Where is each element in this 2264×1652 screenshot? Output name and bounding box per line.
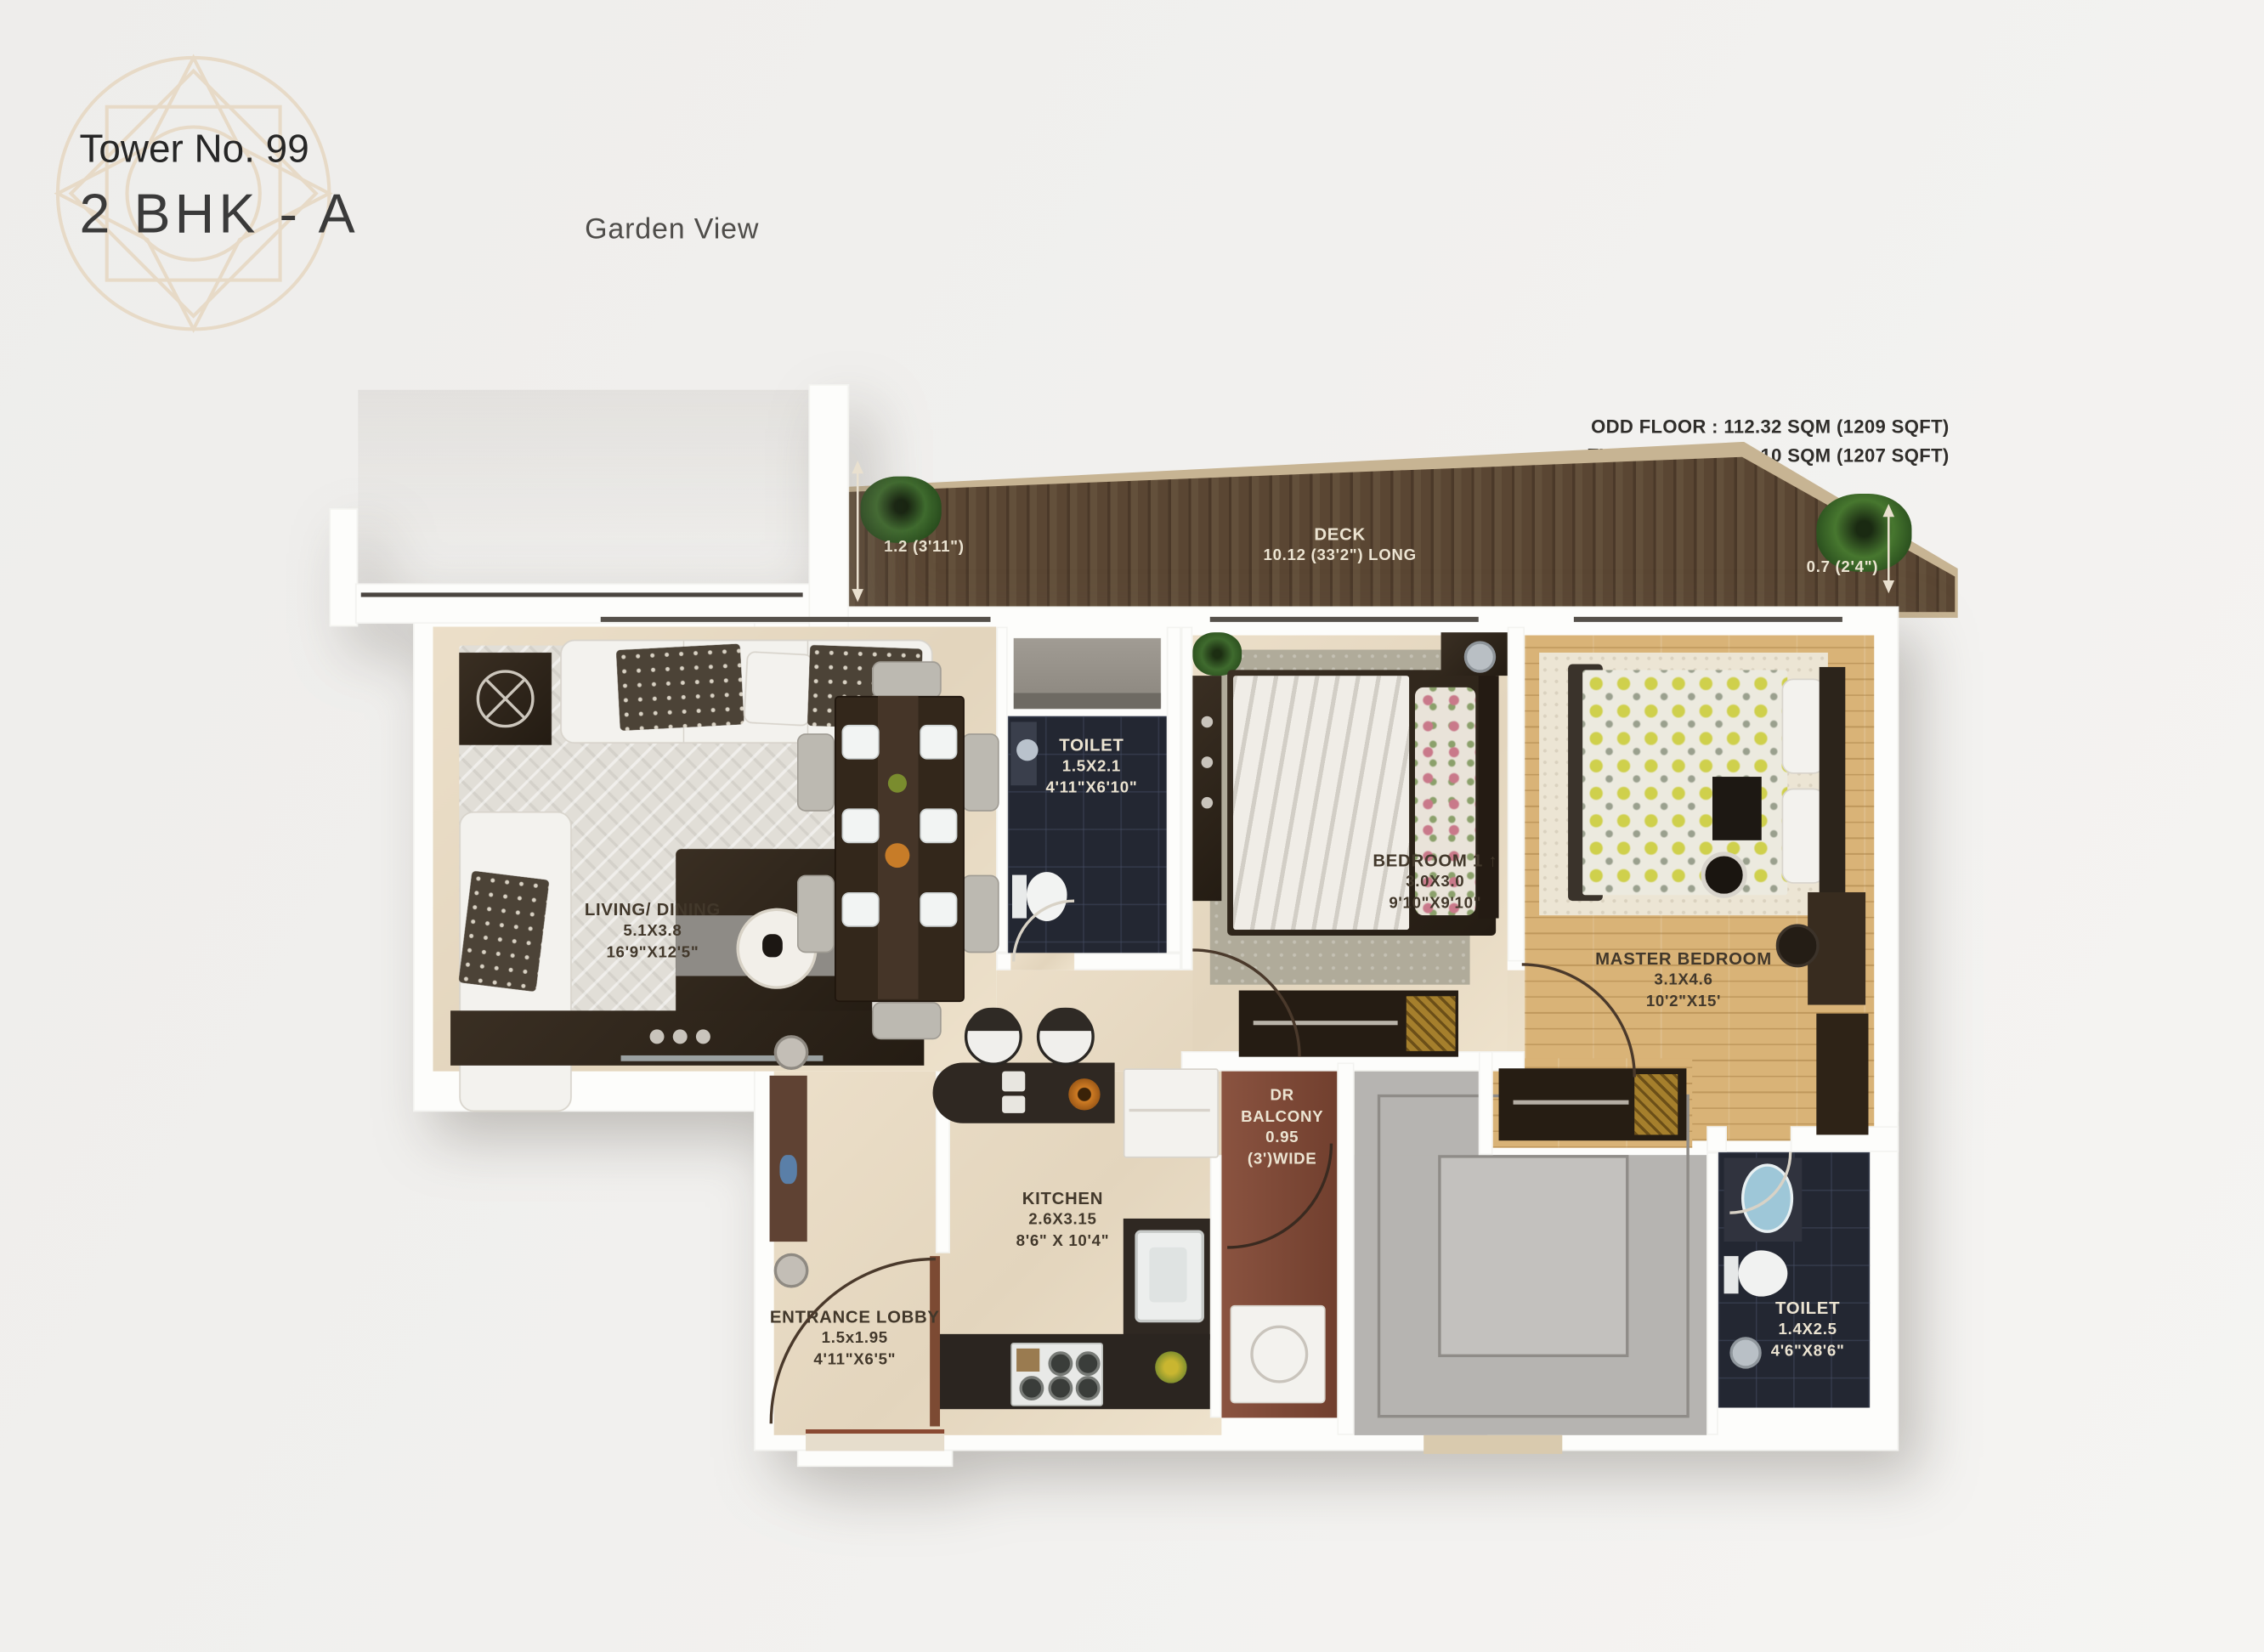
bedroom1-wardrobe-rail [1254,1021,1398,1025]
label-toilet-1: TOILET 1.5X2.1 4'11"X6'10" [1045,733,1137,799]
bedroom1-wardrobe-art [1407,996,1456,1051]
label-dr-balcony: DR BALCONY 0.95 (3')WIDE [1241,1086,1323,1171]
console-knob-2 [673,1029,688,1044]
dining-plate [920,808,957,843]
bed-clock [1701,851,1746,897]
washing-machine-door [1250,1326,1308,1383]
dresser-knob [1202,716,1214,728]
wall-toilet1-east [1167,626,1181,953]
entrance-opening [806,1434,944,1451]
lobby-fixture-top [774,1035,809,1070]
hob-burner [1019,1376,1044,1400]
window-sill-band [355,583,812,624]
sofa-two-seat-cushion [458,870,549,992]
dining-plate [920,725,957,760]
lobby-fixture-bottom [774,1253,809,1288]
dining-chair-bottom [872,1002,942,1039]
wall-bedroom1-master [1508,626,1525,961]
dining-plate [842,892,880,927]
dining-plate [842,725,880,760]
hob-panel [1016,1349,1039,1372]
floor-plan-page: Tower No. 99 2 BHK - A Garden View ODD F… [0,0,2264,1652]
master-wardrobe-rail [1514,1100,1629,1105]
sofa-pillow [744,651,813,727]
master-wardrobe-art [1634,1074,1678,1134]
hob-burner [1048,1351,1073,1376]
master-desk-chair [1776,924,1820,967]
toilet1-basin-icon [1016,739,1038,761]
counter-plant-icon [1155,1351,1186,1383]
bed-tray [1712,777,1762,840]
toilet2-shower-icon [1729,1337,1761,1368]
toilet2-wc-tank [1724,1256,1739,1293]
deck-length: 10.12 (33'2") LONG [1264,546,1417,567]
label-toilet-2: TOILET 1.4X2.5 4'6"X8'6" [1771,1297,1845,1362]
deck-name: DECK [1264,523,1417,546]
console-knob-3 [696,1029,710,1044]
dresser-knob [1202,797,1214,809]
wall-nook-west [1479,1051,1493,1155]
wall-jut-west [329,508,358,626]
dresser-knob [1202,756,1214,768]
toilet1-wc-tank [1012,875,1027,919]
wall-column-north [808,384,849,632]
bedroom1-dresser [1192,676,1221,901]
dining-plate [920,892,957,927]
label-bedroom-1: BEDROOM 1 ↑ 3.0X3.0 9'10"X9'10" [1373,849,1497,914]
dining-plate [842,808,880,843]
counter-dish-1 [1002,1072,1025,1092]
dining-chair-right-1 [962,733,999,812]
refrigerator [1124,1068,1219,1157]
dining-chair-top [872,661,942,699]
wall-toilet2-west [1706,1152,1718,1435]
shaft-outline-inner [1438,1155,1628,1357]
deck-right-width-label: 0.7 (2'4") [1807,557,1879,579]
label-master-bedroom: MASTER BEDROOM 3.1X4.6 10'2"X15' [1595,948,1772,1013]
label-kitchen: KITCHEN 2.6X3.15 8'6" X 10'4" [1016,1187,1110,1253]
side-table [459,653,552,745]
shaft-step [1423,1435,1562,1454]
deck-label: DECK 10.12 (33'2") LONG [1264,523,1417,567]
label-living-dining: LIVING/ DINING 5.1X3.8 16'9"X12'5" [585,898,721,964]
hob-burner [1048,1376,1073,1400]
hob-burner [1076,1376,1101,1400]
odd-floor-area: ODD FLOOR : 112.32 SQM (1209 SQFT) [1587,413,1949,441]
deck-plant-left-icon [861,477,942,543]
console-knob-1 [650,1029,665,1044]
toilet2-basin [1741,1163,1793,1233]
hob-burner [1076,1351,1101,1376]
tray-decor [762,934,783,957]
page-title: Tower No. 99 [79,127,308,173]
master-side-unit [1816,1014,1868,1135]
table-decor-orange [885,843,909,868]
lobby-decor-blue [779,1155,796,1184]
nightstand-lamp-icon [1464,641,1496,672]
deck-left-width-label: 1.2 (3'11") [884,537,965,558]
kitchen-sink-basin [1149,1247,1186,1303]
table-decor-green [888,774,907,793]
view-label: Garden View [585,213,759,246]
wall-bedroom1-west [1181,626,1193,970]
service-ledge-band [1014,693,1161,710]
counter-pot [1068,1078,1100,1110]
entrance-step [797,1450,953,1467]
label-entrance-lobby: ENTRANCE LOBBY 1.5x1.95 4'11"X6'5" [770,1305,940,1371]
counter-dish-2 [1002,1096,1025,1113]
exterior-shade [358,390,808,584]
unit-type-title: 2 BHK - A [79,184,359,246]
toilet1-door-opening [1010,953,1074,970]
wall-toilet2-north-a [1706,1126,1727,1152]
dining-chair-left-1 [797,733,835,812]
sofa-cushions-left [616,643,744,731]
master-headboard [1820,667,1846,898]
north-arrow-icon: ↑ [1488,851,1497,871]
dining-chair-left-2 [797,875,835,953]
refrigerator-divider [1129,1109,1210,1112]
wall-balcony-east [1337,1062,1354,1434]
dining-chair-right-2 [962,875,999,953]
wall-balcony-west [1210,1155,1222,1417]
